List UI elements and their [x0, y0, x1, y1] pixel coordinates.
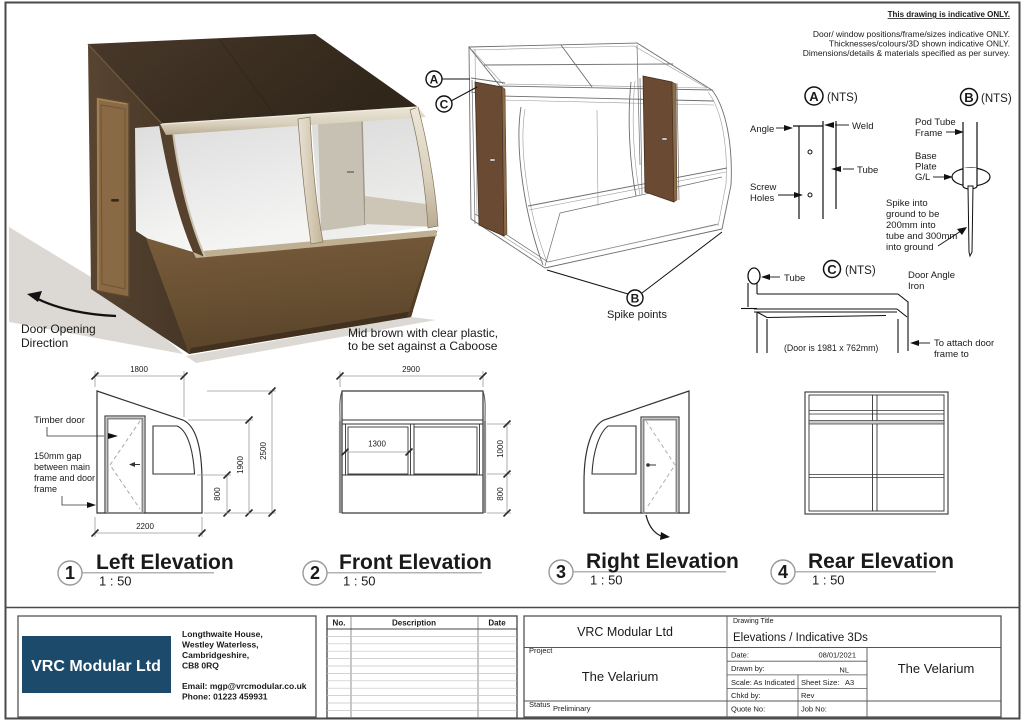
svg-text:Status: Status [529, 700, 551, 709]
svg-text:1 : 50: 1 : 50 [99, 574, 132, 589]
svg-text:1300: 1300 [368, 440, 386, 449]
svg-text:Holes: Holes [750, 193, 775, 204]
svg-text:to be set against a Caboose: to be set against a Caboose [348, 339, 498, 353]
svg-text:Job No:: Job No: [801, 705, 827, 714]
svg-text:C: C [440, 98, 449, 112]
svg-text:NL: NL [839, 666, 849, 675]
svg-text:Tube: Tube [784, 273, 805, 284]
svg-text:between main: between main [34, 462, 90, 472]
svg-text:Direction: Direction [21, 336, 68, 350]
svg-text:A: A [809, 89, 819, 104]
svg-text:Rev: Rev [801, 691, 815, 700]
svg-text:ground to be: ground to be [886, 209, 939, 220]
svg-text:Cambridgeshire,: Cambridgeshire, [182, 650, 249, 660]
svg-text:Drawing Title: Drawing Title [733, 618, 774, 625]
svg-text:Right Elevation: Right Elevation [586, 550, 739, 573]
svg-text:Door Angle: Door Angle [908, 270, 955, 281]
svg-text:1 : 50: 1 : 50 [590, 573, 623, 588]
svg-text:Westley Waterless,: Westley Waterless, [182, 640, 259, 650]
svg-text:The Velarium: The Velarium [898, 661, 975, 676]
svg-text:into ground: into ground [886, 242, 934, 253]
svg-text:This drawing is indicative ONL: This drawing is indicative ONLY. [888, 10, 1010, 19]
svg-text:frame to: frame to [934, 349, 969, 360]
svg-text:(NTS): (NTS) [827, 92, 858, 104]
svg-text:Front Elevation: Front Elevation [339, 551, 492, 574]
svg-text:3: 3 [556, 562, 566, 582]
svg-text:Mid brown with clear plastic,: Mid brown with clear plastic, [348, 326, 498, 340]
svg-text:Email: mgp@vrcmodular.co.uk: Email: mgp@vrcmodular.co.uk [182, 681, 307, 691]
svg-text:VRC Modular Ltd: VRC Modular Ltd [31, 658, 161, 675]
svg-text:The Velarium: The Velarium [582, 669, 659, 684]
svg-text:2900: 2900 [402, 365, 420, 374]
svg-text:Frame: Frame [915, 128, 942, 139]
svg-text:Weld: Weld [852, 121, 873, 132]
svg-text:1: 1 [65, 563, 75, 583]
svg-text:Chkd by:: Chkd by: [731, 691, 761, 700]
svg-text:Plate: Plate [915, 162, 937, 173]
svg-text:1800: 1800 [130, 365, 148, 374]
svg-text:B: B [631, 292, 640, 306]
svg-text:Description: Description [392, 619, 436, 628]
svg-text:frame: frame [34, 484, 57, 494]
svg-text:Date:: Date: [731, 651, 749, 660]
svg-text:2200: 2200 [136, 522, 154, 531]
svg-text:Base: Base [915, 151, 937, 162]
svg-text:08/01/2021: 08/01/2021 [818, 651, 856, 660]
svg-text:Dimensions/details & materials: Dimensions/details & materials specified… [803, 48, 1010, 58]
svg-text:To attach door: To attach door [934, 338, 994, 349]
svg-text:G/L: G/L [915, 172, 930, 183]
svg-text:Scale: As Indicated: Scale: As Indicated [731, 678, 795, 687]
svg-text:Screw: Screw [750, 182, 777, 193]
svg-text:Project: Project [529, 646, 553, 655]
svg-text:Rear Elevation: Rear Elevation [808, 550, 954, 573]
svg-text:Preliminary: Preliminary [553, 704, 591, 713]
svg-text:Pod Tube: Pod Tube [915, 117, 956, 128]
svg-text:Quote No:: Quote No: [731, 705, 765, 714]
svg-text:(NTS): (NTS) [981, 93, 1012, 105]
svg-text:800: 800 [213, 487, 222, 501]
svg-text:CB8 0RQ: CB8 0RQ [182, 661, 219, 671]
svg-text:150mm gap: 150mm gap [34, 451, 82, 461]
svg-text:1000: 1000 [496, 440, 505, 458]
svg-text:(NTS): (NTS) [845, 265, 876, 277]
svg-text:B: B [964, 90, 973, 105]
svg-text:No.: No. [333, 619, 346, 628]
svg-text:200mm into: 200mm into [886, 220, 936, 231]
svg-text:1 : 50: 1 : 50 [343, 574, 376, 589]
svg-text:A3: A3 [845, 678, 854, 687]
svg-text:C: C [827, 262, 837, 277]
svg-text:2: 2 [310, 563, 320, 583]
svg-text:2500: 2500 [259, 442, 268, 460]
svg-text:4: 4 [778, 562, 788, 582]
svg-text:Phone: 01223 459931: Phone: 01223 459931 [182, 692, 268, 702]
svg-text:Door/ window positions/frame/s: Door/ window positions/frame/sizes indic… [813, 29, 1010, 39]
svg-text:Door Opening: Door Opening [21, 322, 96, 336]
svg-text:frame and door: frame and door [34, 473, 95, 483]
svg-text:Left Elevation: Left Elevation [96, 551, 234, 574]
svg-text:Longthwaite House,: Longthwaite House, [182, 629, 263, 639]
svg-text:Elevations / Indicative 3Ds: Elevations / Indicative 3Ds [733, 632, 868, 644]
svg-text:VRC Modular Ltd: VRC Modular Ltd [577, 625, 673, 639]
svg-text:Angle: Angle [750, 124, 774, 135]
svg-text:A: A [430, 73, 439, 87]
svg-text:Timber door: Timber door [34, 415, 85, 426]
svg-text:1 : 50: 1 : 50 [812, 573, 845, 588]
svg-text:Drawn by:: Drawn by: [731, 664, 765, 673]
svg-text:Iron: Iron [908, 281, 924, 292]
svg-text:Spike points: Spike points [607, 309, 667, 321]
svg-text:(Door is 1981 x 762mm): (Door is 1981 x 762mm) [784, 343, 878, 353]
svg-text:Tube: Tube [857, 165, 878, 176]
svg-text:Date: Date [488, 619, 506, 628]
svg-text:Thicknesses/colours/3D shown i: Thicknesses/colours/3D shown indicative … [829, 39, 1010, 49]
svg-text:Spike into: Spike into [886, 198, 928, 209]
svg-text:Sheet Size:: Sheet Size: [801, 678, 839, 687]
svg-text:1900: 1900 [236, 456, 245, 474]
svg-text:800: 800 [496, 487, 505, 501]
